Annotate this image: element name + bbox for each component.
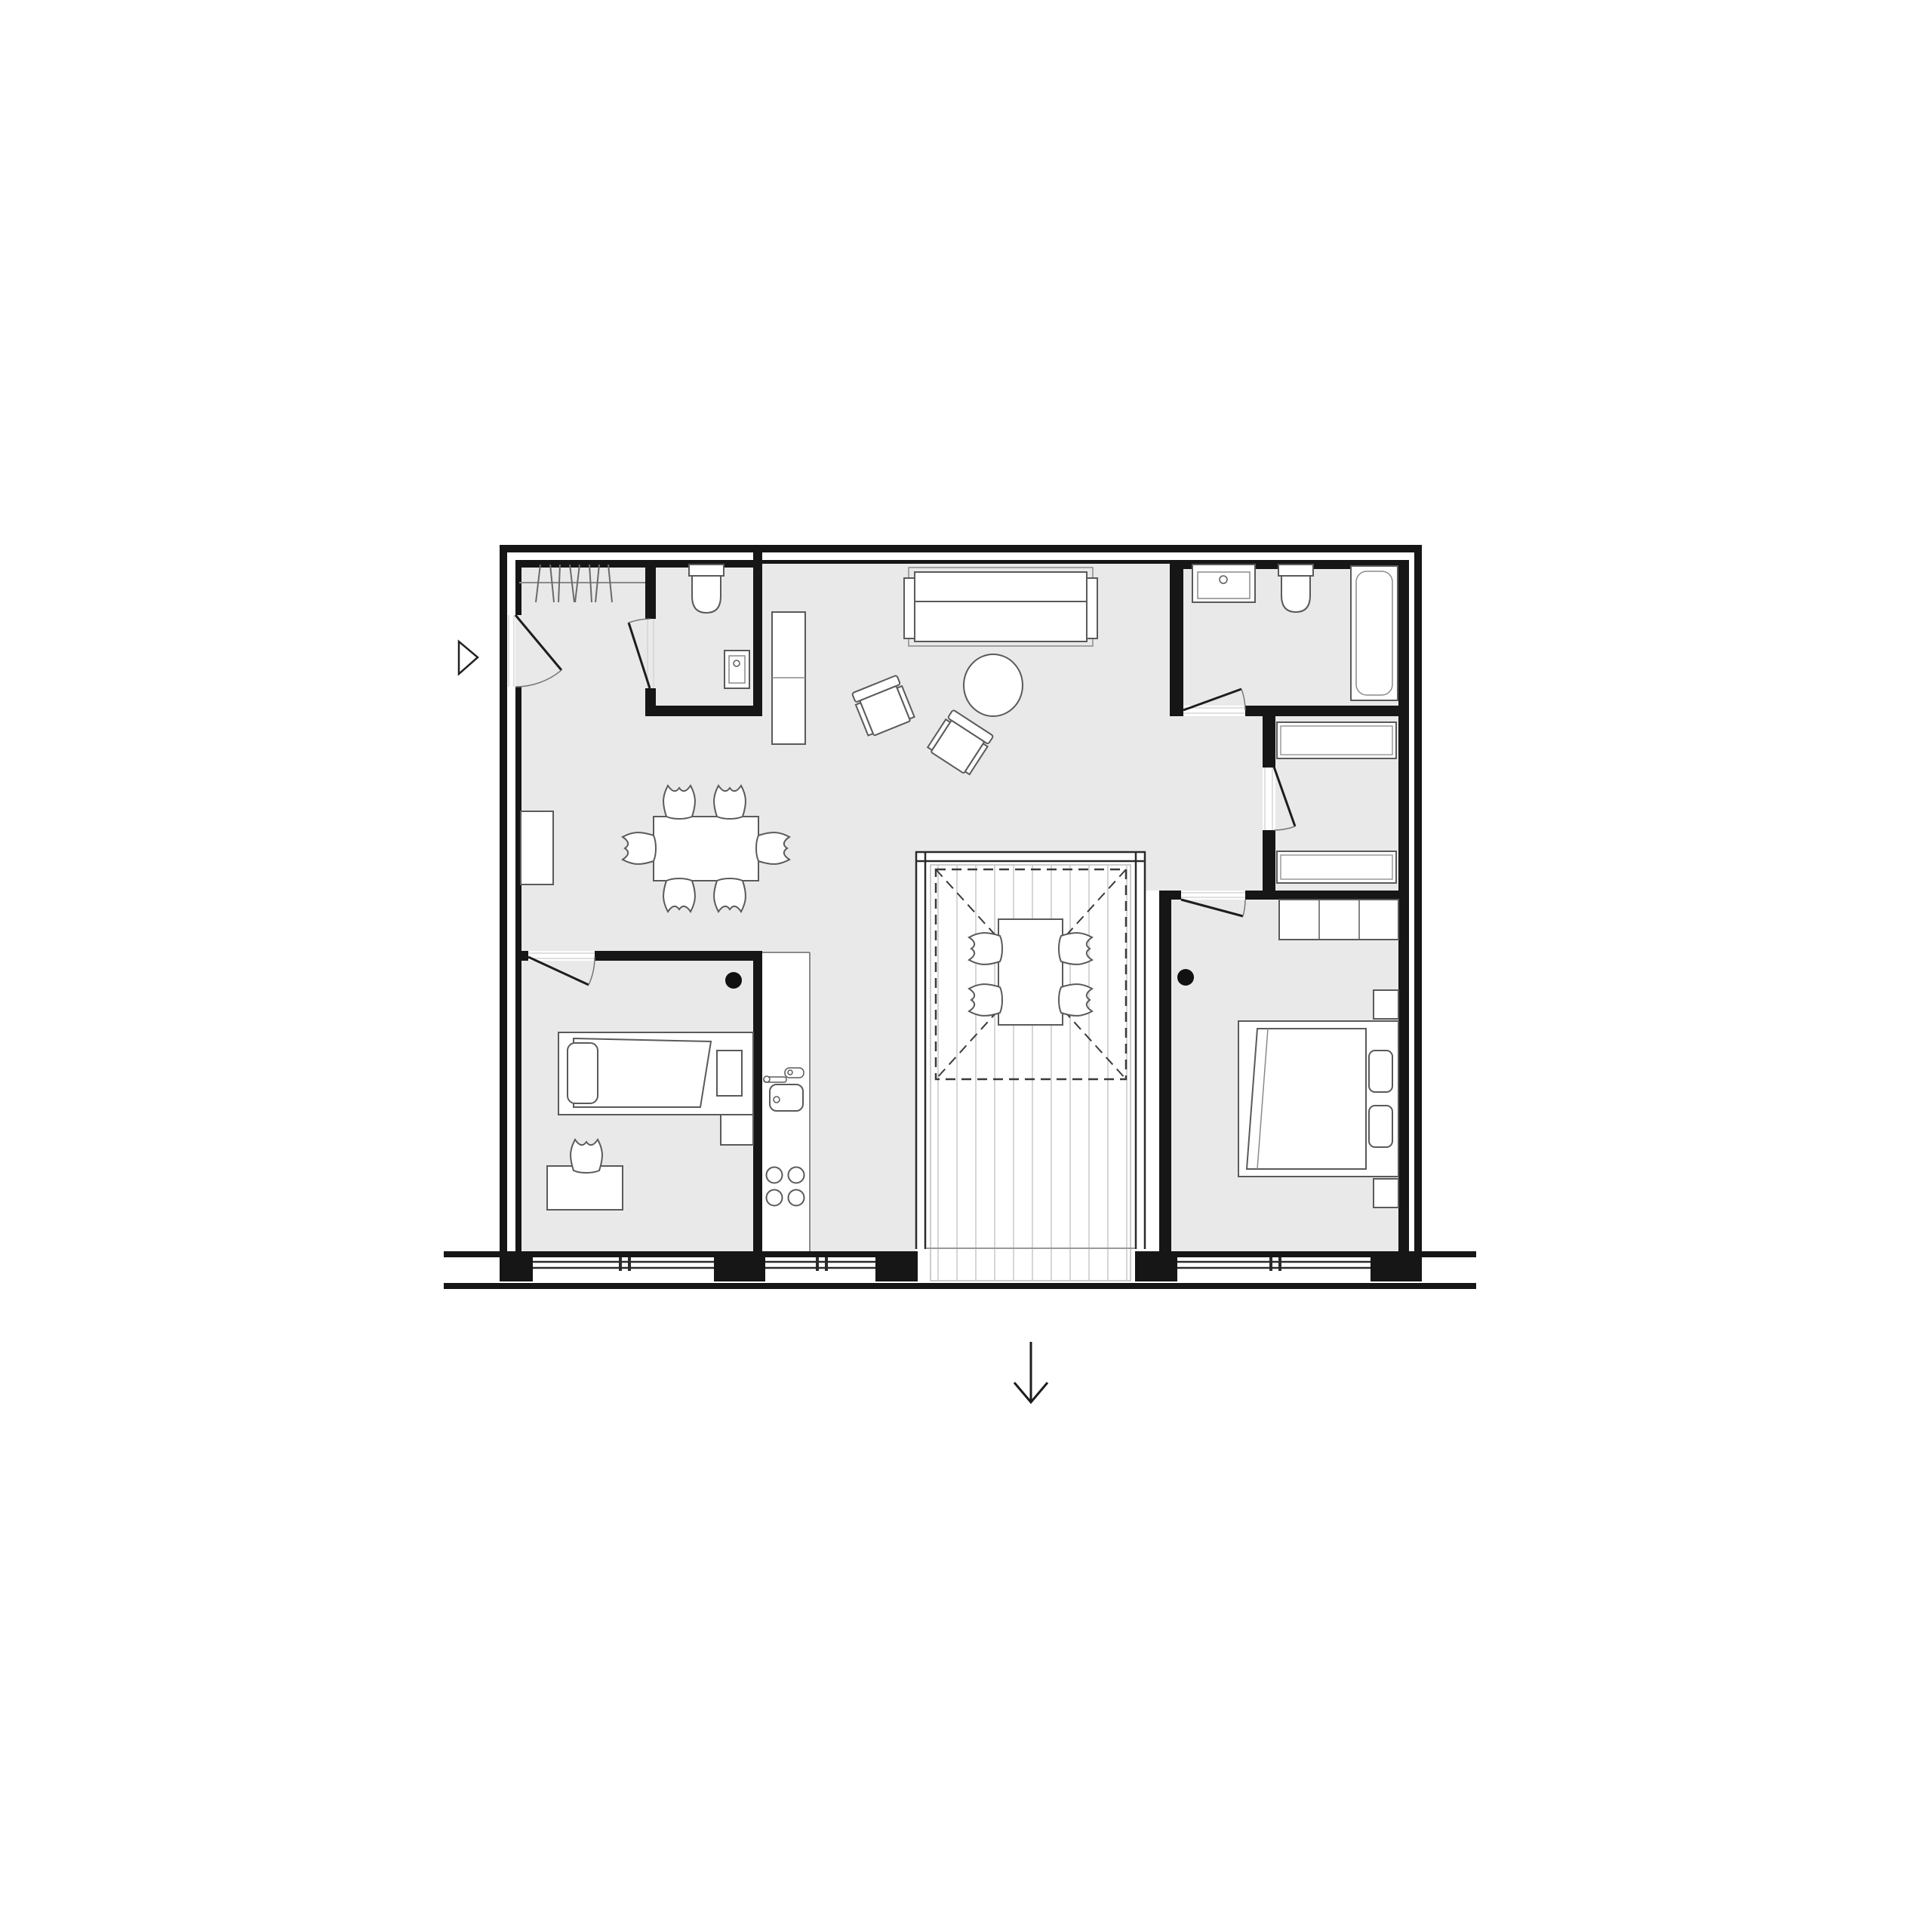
column-dot — [1177, 969, 1194, 986]
terrace-chair — [969, 984, 1002, 1016]
nightstand — [1374, 990, 1398, 1019]
floor-slab-line-right — [1135, 1251, 1414, 1257]
inner-wall-left-above-door — [515, 560, 521, 615]
closet-shelf-bottom — [1277, 851, 1396, 883]
master-wardrobe — [1279, 900, 1398, 940]
bathroom-sink — [1192, 565, 1255, 602]
floor-plan-page — [0, 0, 1932, 1932]
inner-wall-left-small-bedroom — [515, 961, 521, 1251]
dining-table — [654, 817, 758, 881]
bathroom-wall-left — [1170, 560, 1183, 716]
wc-wall-left-top — [645, 560, 656, 619]
bathroom-door-threshold — [1183, 708, 1245, 713]
dining-chair — [623, 832, 656, 864]
exterior-wall-left — [500, 545, 507, 1281]
window-small-bedroom — [533, 1257, 714, 1271]
terrace-chair — [1059, 933, 1092, 964]
single-bed — [558, 1032, 753, 1115]
wc-wall-bottom — [645, 706, 762, 716]
layer-terrace — [915, 851, 1146, 1281]
closet-wall-left-bottom — [1263, 830, 1275, 891]
south-direction-arrow — [1014, 1342, 1048, 1402]
ground-line — [444, 1283, 1476, 1289]
sofa — [904, 568, 1097, 646]
layer-openings — [444, 1251, 1476, 1289]
master-bed — [1238, 1021, 1398, 1177]
kitchen-faucet — [764, 1068, 804, 1082]
small-bedroom-door-threshold — [528, 953, 595, 958]
master-bedroom-door-threshold — [1181, 893, 1245, 897]
small-bedroom-wall-top-stub — [515, 951, 528, 961]
desk-chair — [571, 1140, 602, 1173]
dining-chair — [663, 786, 695, 819]
bedside-desk — [721, 1115, 753, 1145]
nightstand — [1374, 1179, 1398, 1207]
inner-wall-right-full — [1398, 560, 1409, 1251]
site-wall-stub-left — [444, 1251, 500, 1257]
entry-door-threshold — [509, 615, 514, 687]
closet-wall-left-top — [1263, 716, 1275, 768]
wc-toilet — [689, 565, 724, 613]
sideboard — [521, 811, 553, 884]
hall-cabinet — [772, 612, 805, 744]
terrace-table — [998, 919, 1063, 1025]
dining-chair — [663, 878, 695, 912]
bathtub — [1351, 566, 1398, 700]
exterior-wall-top — [500, 545, 1422, 552]
terrace-glazed-walls — [915, 851, 1146, 1249]
window-master-bedroom — [1177, 1257, 1371, 1271]
bathroom-toilet — [1278, 565, 1313, 612]
floor-plan-drawing — [0, 0, 1932, 1932]
wc-sink — [724, 651, 749, 688]
closet-shelf-top — [1277, 722, 1396, 758]
column-dot — [725, 972, 742, 989]
dining-chair — [756, 832, 789, 864]
master-bedroom-wall-top — [1245, 891, 1401, 900]
kitchen-sink — [770, 1084, 803, 1111]
small-bedroom-wall-right — [753, 951, 762, 1251]
inner-wall-top-living — [762, 560, 1170, 564]
terrace-chair — [969, 933, 1002, 964]
inner-wall-top-entry — [515, 560, 762, 568]
dining-chair — [714, 786, 746, 819]
window-kitchen — [765, 1257, 875, 1271]
closet-door-threshold — [1265, 768, 1272, 830]
bathroom-wall-bottom — [1245, 706, 1401, 716]
exterior-wall-right — [1414, 545, 1422, 1281]
floor-slab-line-left — [507, 1251, 918, 1257]
master-bedroom-wall-left — [1159, 891, 1171, 1251]
wc-wall-right — [753, 552, 762, 716]
cooktop — [767, 1168, 804, 1206]
wc-wall-left-stub — [645, 688, 656, 706]
coffee-table — [964, 654, 1023, 716]
small-bedroom-wall-top — [595, 951, 762, 961]
site-wall-stub-right — [1422, 1251, 1476, 1257]
terrace-chair — [1059, 984, 1092, 1016]
dining-chair — [714, 878, 746, 912]
entrance-arrow — [459, 641, 478, 674]
